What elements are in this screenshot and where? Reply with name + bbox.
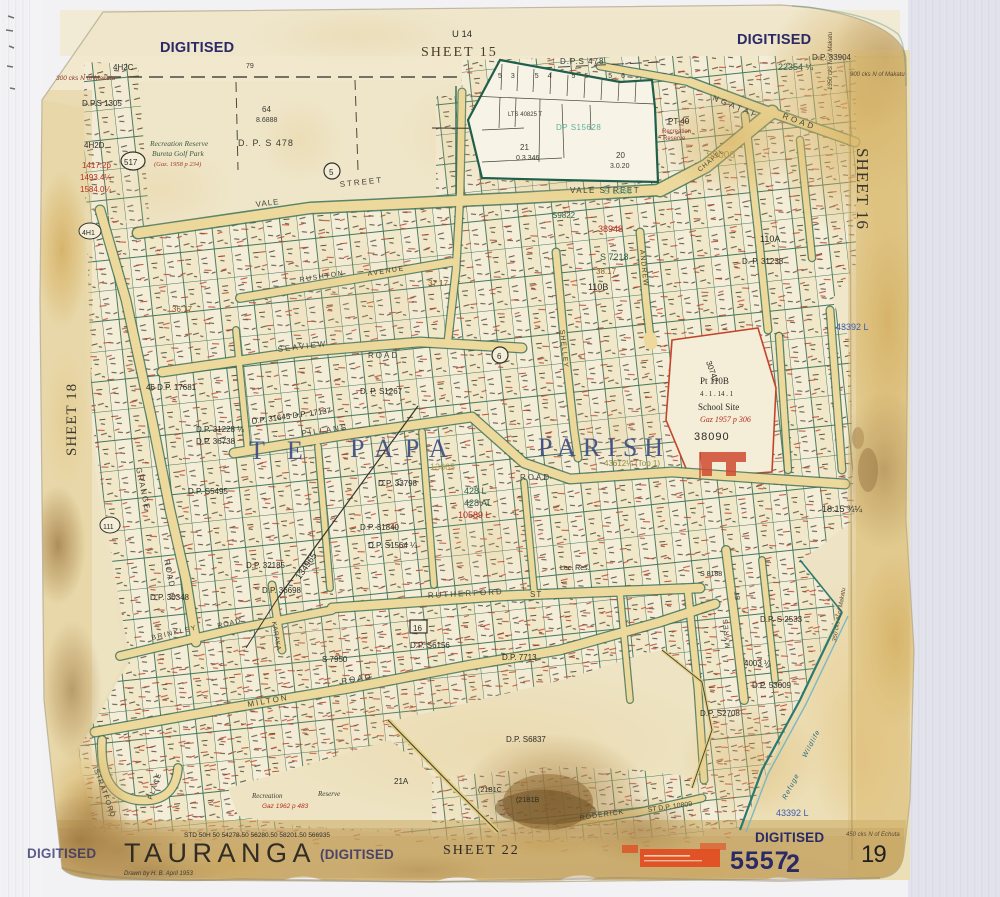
svg-text:4H1: 4H1 (82, 230, 95, 237)
svg-text:D.P. S6837: D.P. S6837 (506, 735, 546, 744)
svg-text:4H2C: 4H2C (113, 63, 134, 72)
svg-text:D. P. 31238: D. P. 31238 (742, 257, 784, 266)
svg-text:D.P. 36738: D.P. 36738 (196, 437, 236, 446)
svg-text:5: 5 (329, 168, 334, 177)
svg-text:S 8188: S 8188 (700, 571, 722, 578)
svg-text:(21B1C: (21B1C (478, 787, 502, 794)
svg-text:Drawn by H. B. April 195: Drawn by H. B. April 1953 (124, 871, 193, 877)
svg-text:13665: 13665 (430, 462, 455, 472)
svg-text:5557: 5557 (730, 847, 790, 875)
svg-text:37.17: 37.17 (428, 279, 449, 288)
svg-text:ROAD: ROAD (520, 473, 551, 482)
svg-text:38090: 38090 (694, 431, 730, 443)
svg-text:0.3.346: 0.3.346 (516, 155, 539, 162)
svg-text:D.P. 30348: D.P. 30348 (150, 593, 190, 602)
svg-text:38948: 38948 (598, 224, 623, 234)
svg-text:(Gaz. 1958 p 234): (Gaz. 1958 p 234) (154, 161, 201, 168)
svg-text:U 14: U 14 (452, 29, 472, 40)
svg-text:Gaz 1957 p 306: Gaz 1957 p 306 (700, 415, 751, 424)
svg-text:D.P. S5495: D.P. S5495 (188, 487, 228, 496)
svg-text:79: 79 (246, 63, 254, 70)
svg-text:46 D.P. 17681: 46 D.P. 17681 (146, 383, 197, 392)
svg-text:TE: TE (249, 436, 325, 465)
svg-text:S 7950: S 7950 (322, 655, 348, 664)
svg-text:Reserve: Reserve (317, 790, 340, 798)
svg-text:21A: 21A (394, 777, 409, 786)
svg-text:Recreation: Recreation (251, 792, 283, 800)
svg-text:PARISH: PARISH (538, 433, 670, 462)
svg-text:1584.0¼: 1584.0¼ (80, 185, 111, 194)
svg-text:D. P. S 478: D. P. S 478 (238, 138, 294, 148)
svg-text:300 cks N of Maketu: 300 cks N of Maketu (56, 75, 116, 82)
svg-text:22354 ¼: 22354 ¼ (778, 62, 814, 72)
svg-text:School Site: School Site (698, 402, 739, 412)
svg-text:SHEET 22: SHEET 22 (443, 843, 520, 858)
svg-text:D.P. S6156: D.P. S6156 (410, 641, 450, 650)
svg-text:428 L: 428 L (464, 486, 487, 496)
svg-text:64: 64 (262, 105, 271, 114)
svg-text:Recreation Reserve: Recreation Reserve (149, 139, 209, 148)
svg-text:36.17: 36.17 (172, 305, 193, 314)
svg-text:4 . 1 . 14 . 1: 4 . 1 . 14 . 1 (700, 390, 734, 398)
svg-text:2: 2 (786, 850, 800, 878)
svg-text:110B: 110B (588, 282, 608, 292)
svg-text:S 1268: S 1268 (604, 187, 632, 196)
svg-text:DIGITISED: DIGITISED (27, 846, 96, 861)
svg-text:53 54 55 56: 53 54 55 56 (498, 73, 634, 80)
svg-text:16: 16 (413, 624, 422, 633)
svg-text:SHEET 15: SHEET 15 (421, 45, 498, 60)
svg-text:43392 L: 43392 L (836, 322, 869, 332)
svg-text:DP S15628: DP S15628 (556, 123, 601, 132)
svg-text:D.P. 31228 ¼: D.P. 31228 ¼ (196, 425, 244, 434)
svg-text:D.P. S 2533: D.P. S 2533 (760, 615, 803, 624)
svg-text:Gaz 1962 p 483: Gaz 1962 p 483 (262, 803, 309, 810)
svg-text:21: 21 (520, 143, 529, 152)
svg-text:1417.2p: 1417.2p (82, 161, 111, 170)
svg-text:19: 19 (861, 841, 886, 868)
svg-text:D.P. 31840: D.P. 31840 (360, 523, 400, 532)
svg-text:D.P. 53009: D.P. 53009 (752, 681, 792, 690)
svg-text:D.P. 32185: D.P. 32185 (246, 561, 286, 570)
svg-text:TAURANGA: TAURANGA (124, 838, 316, 868)
svg-text:Bureta Golf Park: Bureta Golf Park (152, 149, 204, 158)
svg-text:110A: 110A (760, 234, 780, 244)
svg-text:D.P. 33798: D.P. 33798 (378, 479, 418, 488)
svg-text:S 7218: S 7218 (600, 252, 629, 262)
svg-text:D.P. 36698: D.P. 36698 (262, 586, 302, 595)
svg-text:D.P. S1564 ¼: D.P. S1564 ¼ (368, 541, 417, 550)
svg-text:D.P. 7713: D.P. 7713 (502, 653, 537, 662)
svg-text:DIGITISED: DIGITISED (160, 40, 234, 56)
svg-text:3.0.20: 3.0.20 (610, 163, 630, 170)
svg-text:S9006: S9006 (706, 150, 735, 161)
svg-text:DIGITISED: DIGITISED (755, 830, 824, 845)
svg-text:SHEET 18: SHEET 18 (64, 383, 80, 456)
svg-text:517: 517 (124, 158, 138, 167)
svg-text:20: 20 (616, 151, 625, 160)
svg-text:D.P.S 478: D.P.S 478 (560, 57, 604, 66)
svg-text:DIGITISED: DIGITISED (737, 32, 811, 48)
svg-text:D.P. S2708: D.P. S2708 (700, 709, 740, 718)
svg-text:ST: ST (530, 590, 542, 599)
svg-text:900 cks N of Makatu: 900 cks N of Makatu (850, 72, 905, 78)
svg-text:43392 L: 43392 L (776, 808, 809, 818)
svg-text:SHEET 16: SHEET 16 (853, 148, 872, 230)
svg-text:10589 L: 10589 L (458, 510, 491, 520)
svg-text:18:15 ¾¼: 18:15 ¾¼ (822, 504, 863, 514)
svg-text:450 cks N of Echuta: 450 cks N of Echuta (846, 832, 900, 838)
svg-text:1493.4¼: 1493.4¼ (80, 173, 111, 182)
svg-text:D.P.S 1305: D.P.S 1305 (82, 99, 122, 108)
svg-text:4H2D: 4H2D (84, 141, 105, 150)
svg-text:Reserve: Reserve (663, 136, 686, 142)
svg-text:S9822: S9822 (552, 211, 576, 220)
svg-text:8.6888: 8.6888 (256, 117, 278, 124)
svg-text:43612¼ (Top 1): 43612¼ (Top 1) (604, 459, 660, 468)
svg-text:ST: ST (734, 590, 742, 600)
svg-text:ROAD: ROAD (368, 351, 399, 360)
svg-text:4003 ¼: 4003 ¼ (744, 659, 771, 668)
svg-text:D. P. S1267: D. P. S1267 (360, 387, 403, 396)
svg-text:(DIGITISED: (DIGITISED (320, 847, 394, 862)
svg-text:LTS 40825 T: LTS 40825 T (508, 112, 542, 118)
svg-text:428 AL: 428 AL (464, 498, 492, 508)
svg-text:PAPA: PAPA (350, 434, 460, 463)
svg-text:(21B1B: (21B1B (516, 797, 540, 804)
svg-text:STD 50H 50 54278.50 56280.50: STD 50H 50 54278.50 56280.50 58201.50 56… (184, 832, 330, 839)
svg-text:PT 40: PT 40 (668, 117, 690, 126)
svg-text:38.17: 38.17 (596, 267, 617, 276)
svg-text:111: 111 (103, 524, 114, 531)
svg-text:6: 6 (497, 352, 502, 361)
svg-text:Recreation: Recreation (662, 129, 691, 135)
svg-text:Lec. Res.: Lec. Res. (560, 565, 590, 572)
svg-text:1350 cks N of Makatu: 1350 cks N of Makatu (828, 31, 834, 90)
